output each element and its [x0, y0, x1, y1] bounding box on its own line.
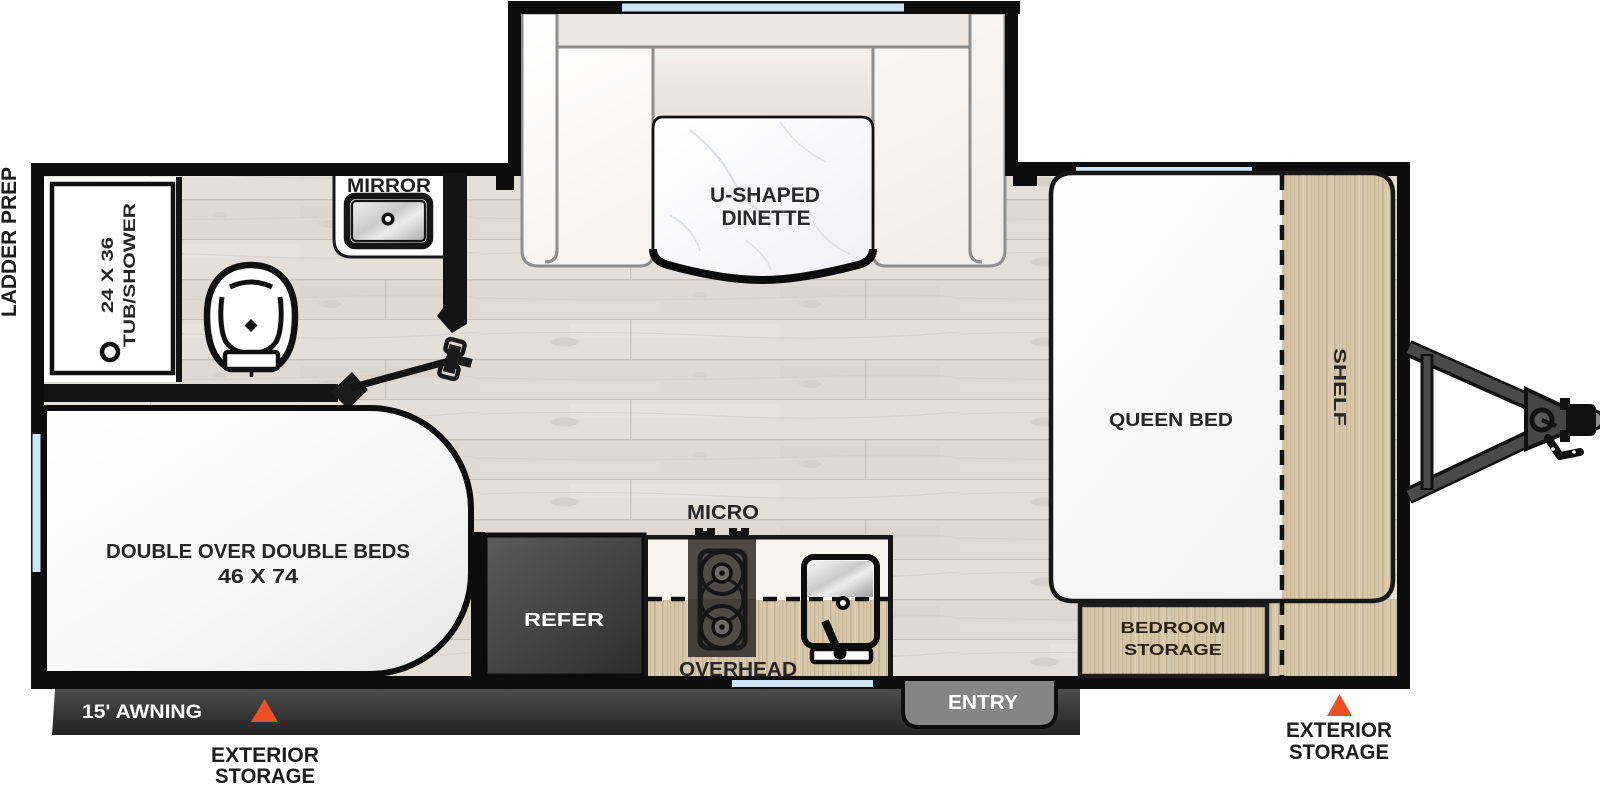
svg-text:15' AWNING: 15' AWNING [82, 701, 202, 723]
svg-text:ENTRY: ENTRY [948, 692, 1019, 714]
svg-text:STORAGE: STORAGE [1289, 741, 1389, 764]
svg-text:TUB/SHOWER: TUB/SHOWER [120, 203, 139, 347]
svg-text:MICRO: MICRO [687, 502, 759, 524]
svg-text:OVERHEAD: OVERHEAD [679, 659, 797, 681]
svg-text:46 X 74: 46 X 74 [218, 566, 299, 588]
svg-text:LADDER PREP: LADDER PREP [0, 167, 21, 317]
svg-text:STORAGE: STORAGE [215, 765, 315, 785]
svg-text:DOUBLE OVER DOUBLE BEDS: DOUBLE OVER DOUBLE BEDS [106, 541, 410, 563]
svg-text:EXTERIOR: EXTERIOR [211, 744, 319, 767]
svg-text:DINETTE: DINETTE [722, 207, 811, 230]
svg-text:QUEEN BED: QUEEN BED [1109, 409, 1233, 430]
svg-text:U-SHAPED: U-SHAPED [710, 184, 820, 207]
svg-text:BEDROOM: BEDROOM [1121, 620, 1226, 637]
svg-text:STORAGE: STORAGE [1124, 642, 1222, 659]
svg-text:SHELF: SHELF [1330, 348, 1350, 426]
svg-text:EXTERIOR: EXTERIOR [1286, 719, 1392, 742]
svg-text:REFER: REFER [524, 609, 604, 630]
svg-text:24 X 36: 24 X 36 [98, 237, 117, 313]
